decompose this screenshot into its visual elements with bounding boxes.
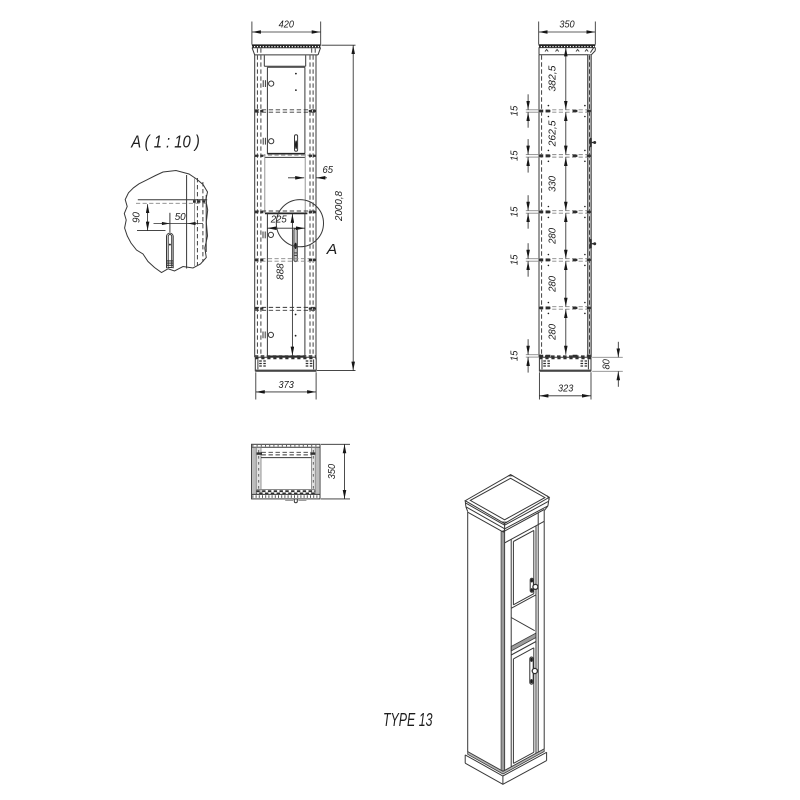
svg-text:15: 15	[510, 106, 521, 117]
svg-text:80: 80	[601, 359, 612, 370]
svg-text:TYPE 13: TYPE 13	[383, 710, 433, 730]
svg-text:A ( 1 : 10 ): A ( 1 : 10 )	[130, 132, 199, 152]
svg-text:A: A	[326, 242, 338, 258]
svg-text:350: 350	[327, 464, 338, 480]
svg-text:323: 323	[558, 384, 574, 395]
svg-text:225: 225	[270, 214, 287, 225]
svg-text:888: 888	[276, 263, 287, 280]
svg-text:373: 373	[279, 380, 295, 391]
svg-text:280: 280	[547, 276, 558, 293]
svg-text:90: 90	[132, 212, 143, 223]
svg-text:350: 350	[559, 19, 575, 30]
svg-text:15: 15	[510, 254, 521, 265]
svg-text:420: 420	[279, 19, 295, 30]
svg-text:382,5: 382,5	[547, 65, 558, 91]
svg-text:15: 15	[510, 206, 521, 217]
svg-text:15: 15	[510, 350, 521, 361]
svg-text:15: 15	[510, 150, 521, 161]
svg-text:330: 330	[547, 176, 558, 192]
svg-text:50: 50	[175, 212, 186, 223]
svg-text:262,5: 262,5	[547, 120, 558, 147]
svg-text:2000,8: 2000,8	[334, 191, 345, 222]
svg-text:280: 280	[547, 228, 558, 245]
svg-text:65: 65	[323, 165, 334, 176]
svg-text:280: 280	[547, 324, 558, 341]
